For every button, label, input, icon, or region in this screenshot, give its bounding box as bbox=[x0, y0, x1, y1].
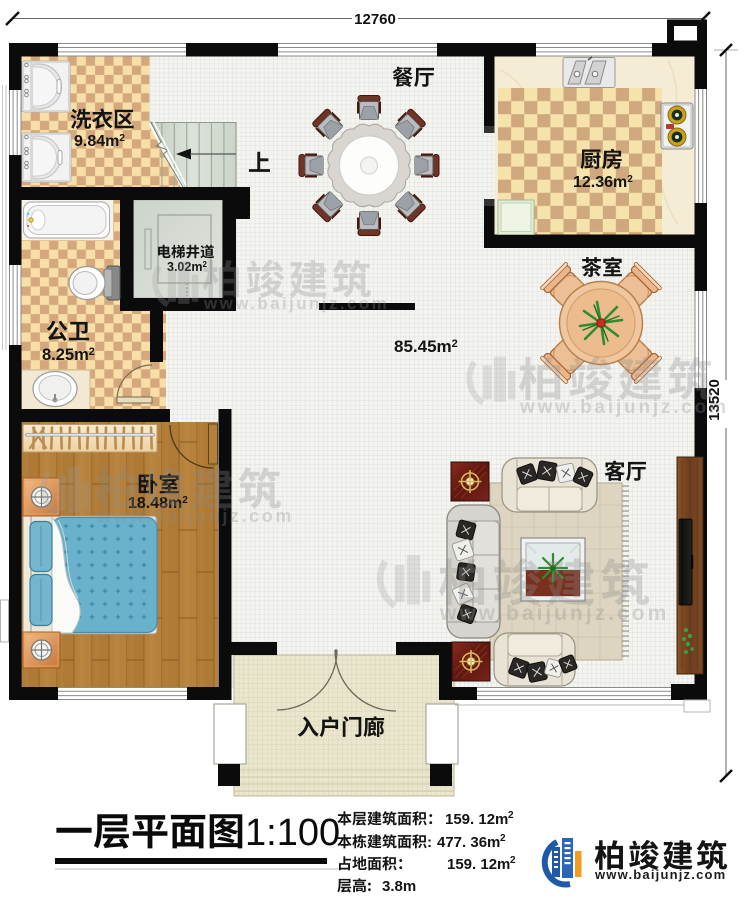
svg-text:www.baijunjz.com: www.baijunjz.com bbox=[439, 602, 669, 625]
svg-text:159. 12m: 159. 12m bbox=[447, 856, 510, 873]
svg-text:159. 12m: 159. 12m bbox=[445, 811, 508, 828]
svg-text:8.25m2: 8.25m2 bbox=[42, 346, 95, 364]
svg-text:www.baijunjz.com: www.baijunjz.com bbox=[203, 294, 389, 313]
svg-text:9.84m2: 9.84m2 bbox=[74, 133, 125, 150]
svg-text:1:100: 1:100 bbox=[245, 812, 340, 854]
svg-text:12760: 12760 bbox=[354, 11, 396, 28]
svg-text:www.baijunjz.com: www.baijunjz.com bbox=[96, 506, 294, 526]
svg-text:477. 36m: 477. 36m bbox=[437, 834, 500, 851]
svg-text:85.45m2: 85.45m2 bbox=[394, 337, 458, 356]
svg-text:www.baijunjz.com: www.baijunjz.com bbox=[594, 867, 726, 882]
svg-text:3.8m: 3.8m bbox=[382, 878, 416, 895]
svg-text:www.baijunjz.com: www.baijunjz.com bbox=[519, 397, 729, 418]
svg-text:2: 2 bbox=[510, 855, 516, 866]
svg-text:12.36m2: 12.36m2 bbox=[573, 174, 633, 191]
svg-text:2: 2 bbox=[500, 833, 506, 844]
svg-text:2: 2 bbox=[508, 810, 514, 821]
svg-text::: : bbox=[427, 834, 432, 851]
